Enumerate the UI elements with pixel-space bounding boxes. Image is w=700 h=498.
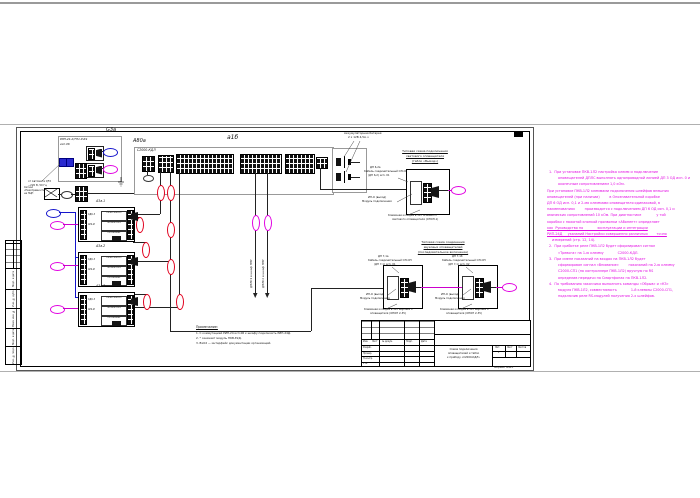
subdiagram-top-title: светового оповещателя	[392, 155, 458, 158]
riser-label-left: ДПЛС1 в шкаф ППУ	[249, 236, 253, 288]
note-item: 1. С коммутацией РИП-24 исп.06 к шкафу п…	[196, 332, 291, 335]
tb-lit-header: Листов	[518, 347, 526, 349]
wire	[58, 194, 61, 195]
block-bottom-plug	[112, 281, 121, 286]
device-block: СДК-3 АР2-И ПК-ВХ 3000-1У ПК-Реле тест П…	[78, 207, 135, 242]
cable-marker	[61, 191, 73, 199]
block-bottom-plug	[112, 321, 121, 326]
block-cell: ПК-ВХ 3000-1У	[101, 256, 127, 266]
note-link-line[interactable]: как Руководство по эксплуатации и интегр…	[547, 227, 648, 230]
terminal-row-3	[285, 154, 315, 174]
psu-designator: G3а	[106, 128, 116, 134]
note-line: определив передачи на Смартфонах на ПКВ-…	[558, 277, 647, 280]
note-link-line[interactable]: РИП-24Д указаний Настройки совершенно ра…	[547, 233, 667, 236]
cable-marker-red	[167, 185, 175, 201]
wire	[133, 261, 170, 262]
cable-marker-red	[167, 222, 175, 238]
cable-marker-magenta	[451, 186, 466, 195]
note-line: оконечным сопротивлением 1,0 кОм.	[558, 183, 625, 186]
reader-module	[142, 156, 155, 172]
block-bottom-plug	[112, 236, 121, 241]
psu-module-1	[86, 146, 104, 161]
subdiagram-top-title: Типовая схема подключения	[392, 150, 458, 153]
sounder-module-a	[387, 272, 417, 300]
format-label: Формат А4х3	[494, 366, 513, 369]
strip-label: Инв. № дубл.	[12, 290, 15, 307]
strip-label: Инв. № подл.	[12, 347, 15, 364]
wire-blue	[59, 212, 76, 213]
kdl-model: С2000-КДЛ	[137, 149, 156, 153]
cable-marker-magenta	[252, 215, 260, 231]
note-line: подключив реле RS-модулей получения 2-х …	[558, 295, 655, 298]
frame-corner-marker	[514, 132, 523, 137]
psu-module-2	[86, 163, 104, 178]
psu-variant: исп.06	[60, 143, 70, 146]
bottom-label: оповещателя (ОПОП 2-35)	[370, 313, 406, 316]
page-edge-top	[0, 2, 700, 4]
cable-marker-red	[157, 185, 165, 201]
tb-col-header: Подп.	[406, 341, 413, 343]
note-line: 1. При установке ПКВ-1Л2 настройка клемм…	[549, 171, 658, 174]
tb-lit-header: Лит.	[495, 347, 500, 349]
sheet-top-edge	[0, 124, 700, 125]
battery-symbol-1	[336, 156, 360, 168]
wire-magenta	[63, 265, 79, 266]
bottom-label: светового оповещателя (ОПОП-1)	[392, 219, 438, 222]
module-label: Модуль подключения	[435, 298, 465, 301]
cable-marker-red	[167, 259, 175, 275]
block-left-label: СДК-3	[88, 214, 95, 217]
block-left-label: АР2-И	[88, 224, 95, 227]
left-title-strip: Подп. и дата Инв. № дубл. Взам. инв. № П…	[5, 240, 22, 365]
block-designator: А3а.3	[96, 285, 105, 289]
note-line: омических сопротивлений 10 кОм. При диаг…	[547, 214, 666, 217]
note-line: «Тревога» на 1-ю клемму С2000-КДЛ.	[558, 252, 639, 255]
wire	[320, 189, 406, 190]
block-cell: ПК-ВХ 3000-1У	[101, 211, 127, 221]
tb-row-label: Разраб.	[363, 347, 372, 349]
note-line: При установке ПКВ-1Л2 клеммами подключен…	[547, 190, 669, 193]
tb-row-label: Провер.	[363, 353, 372, 355]
wire	[255, 172, 256, 294]
note-line: ДП 6 ОД исп. 0,1 и 2-мя клеммами оповеща…	[547, 202, 660, 205]
cable-marker-red	[143, 294, 151, 310]
strip-cell: Инв. № дубл.	[6, 289, 21, 308]
battery-symbol-2	[336, 171, 360, 183]
block-left-label: АР2-И	[88, 269, 95, 272]
fault-terminal-block	[75, 186, 88, 202]
wire	[320, 168, 321, 189]
subdiagram-bottom-title: (последовательное включение)	[408, 251, 478, 254]
device-block: СДК-3 АР2-И ПК-ВХ 3000-1У ПК-Реле тест П…	[78, 252, 135, 287]
cable-marker-magenta	[103, 165, 118, 174]
title-block-approval-grid	[362, 321, 434, 339]
block-cell: ПК-Реле тест	[101, 266, 127, 276]
terminal-row-2	[240, 154, 282, 174]
strip-label: Подп. и дата	[12, 271, 15, 287]
wire	[71, 194, 75, 195]
strip-label: Подп. и дата	[12, 329, 15, 345]
block-designator: А3а.1	[96, 200, 105, 204]
strip-cell: Взам. инв. №	[6, 308, 21, 327]
strip-cell: Подп. и дата	[6, 328, 21, 346]
riser-label-right: ДПЛС2 в шкаф ППУ	[261, 236, 265, 288]
psu-model: РИП-24-2/7П1-Р-RS	[60, 138, 87, 141]
cable-marker-magenta	[264, 215, 272, 231]
doc-title: к прибору «С2000-КДЛ»	[435, 357, 492, 360]
tb-row-label: Н.контр.	[363, 358, 373, 360]
note-line: наименованиях производится с подключение…	[547, 208, 675, 211]
note-line: коробки с нажатой кнопкой прозвонки «Або…	[547, 221, 660, 224]
block-cell: ПК-Реле тест	[101, 221, 127, 231]
wire	[311, 288, 312, 331]
strip-cell: Подп. и дата	[6, 268, 21, 288]
note-line: 3. При смене показаний на входах на ПКВ-…	[549, 258, 646, 261]
cable-label: (ДП 6,2) исп. 01	[368, 175, 390, 178]
block-designator: А3а.2	[96, 245, 105, 249]
tb-lit-value: Р	[498, 352, 499, 354]
note-item: 2. * означает модуль ПКВ-Е2Д.	[196, 337, 242, 340]
block-cell: ПК-ВХ 3000-1У	[101, 296, 127, 306]
subdiagram-top-title: (табло «Выход»)	[392, 160, 458, 163]
strip-cell: Инв. № подл.	[6, 346, 21, 364]
cable-marker-magenta	[50, 262, 65, 271]
tb-col-header: № докум.	[382, 341, 393, 343]
wire	[267, 172, 268, 294]
cable-marker-magenta	[502, 283, 517, 292]
block-left-label: СДК-3	[88, 299, 95, 302]
tb-col-header: Лист	[372, 341, 378, 343]
kdl-module-2	[158, 155, 174, 173]
wire	[439, 190, 448, 191]
strip-label: Взам. инв. №	[12, 310, 15, 327]
wire	[86, 193, 140, 194]
cable-marker	[143, 175, 154, 182]
kdl-designator: А80а	[133, 139, 146, 145]
strip-grid-cell	[6, 241, 21, 268]
cable-marker-magenta	[50, 305, 65, 314]
note-line: оповещателей (при наличии) в Опознавател…	[547, 196, 660, 199]
cable-marker-blue	[46, 209, 61, 218]
annunciator-module	[410, 177, 440, 205]
cable-marker-magenta	[50, 221, 65, 230]
battery-label: 2 х 12В 4,5А·ч	[348, 136, 368, 139]
wire	[133, 307, 179, 308]
note-line: 2. При сработке реле ПКВ-1Л2 будет сформ…	[549, 245, 655, 248]
tb-col-header: Дата	[421, 341, 427, 343]
block-left-label: АР2-И	[88, 309, 95, 312]
subdiagram-bottom-title: Типовая схема соединения	[408, 241, 478, 244]
sounder-module-b	[462, 272, 492, 300]
device-block: СДК-3 АР2-И ПК-ВХ 3000-1У ПК-Реле тест П…	[78, 292, 135, 327]
cable-marker-blue	[103, 148, 118, 157]
tb-col-header: Изм.	[363, 341, 368, 343]
note-line: С2000-СП1 (на контроллере ПКВ-1Л2) вручн…	[558, 270, 653, 273]
drawing-viewer-canvas: Подп. и дата Инв. № дубл. Взам. инв. № П…	[0, 0, 700, 498]
wire	[311, 288, 383, 289]
cable-marker-red	[142, 242, 150, 258]
subdiagram-bottom-title: звуковых оповещателей	[408, 246, 478, 249]
cable-marker-red	[176, 294, 184, 310]
wire-magenta	[421, 287, 462, 288]
notes-header: Примечание:	[196, 326, 218, 330]
bottom-label: оповещателя (ОПОП 2-35)	[446, 313, 482, 316]
note-line: модуля ПКВ-1Л2, совместимость 1-й клеммы…	[558, 289, 673, 292]
note-line: сформирован сигнал «Внимание» показаний …	[558, 264, 675, 267]
module-label: Модуль подключения	[360, 298, 390, 301]
power-connector-2x2	[316, 157, 328, 169]
psu-terminal-block	[75, 163, 87, 179]
note-item: 3. ВхО2 — интерфейс документации организ…	[196, 342, 271, 345]
note-line: 4. По требованию заказчика выполнить ком…	[549, 283, 669, 286]
tb-row-label: Утв.	[363, 363, 368, 365]
note-line: измерений (стр. 12, 14).	[552, 239, 595, 242]
note-line: оповещателей ДПЛС выполнять однопроводно…	[558, 177, 690, 180]
terminal-row-1	[176, 154, 234, 174]
wire	[179, 172, 180, 307]
module-label: Модуль подключения	[362, 201, 392, 204]
mains-plug-right	[66, 158, 74, 167]
wire-magenta	[63, 224, 79, 225]
fault-label: на ПЦН	[24, 193, 33, 196]
block-cell: ПК-Реле тест	[101, 306, 127, 316]
sheet-bottom-edge	[0, 371, 700, 372]
tb-lit-header: Лист	[507, 347, 513, 349]
title-block: Изм. Лист № докум. Подп. Дата Разраб. Пр…	[361, 320, 531, 367]
wire-magenta	[63, 308, 79, 309]
terminal-group-tag: а1б	[227, 135, 238, 142]
block-left-label: СДК-3	[88, 259, 95, 262]
